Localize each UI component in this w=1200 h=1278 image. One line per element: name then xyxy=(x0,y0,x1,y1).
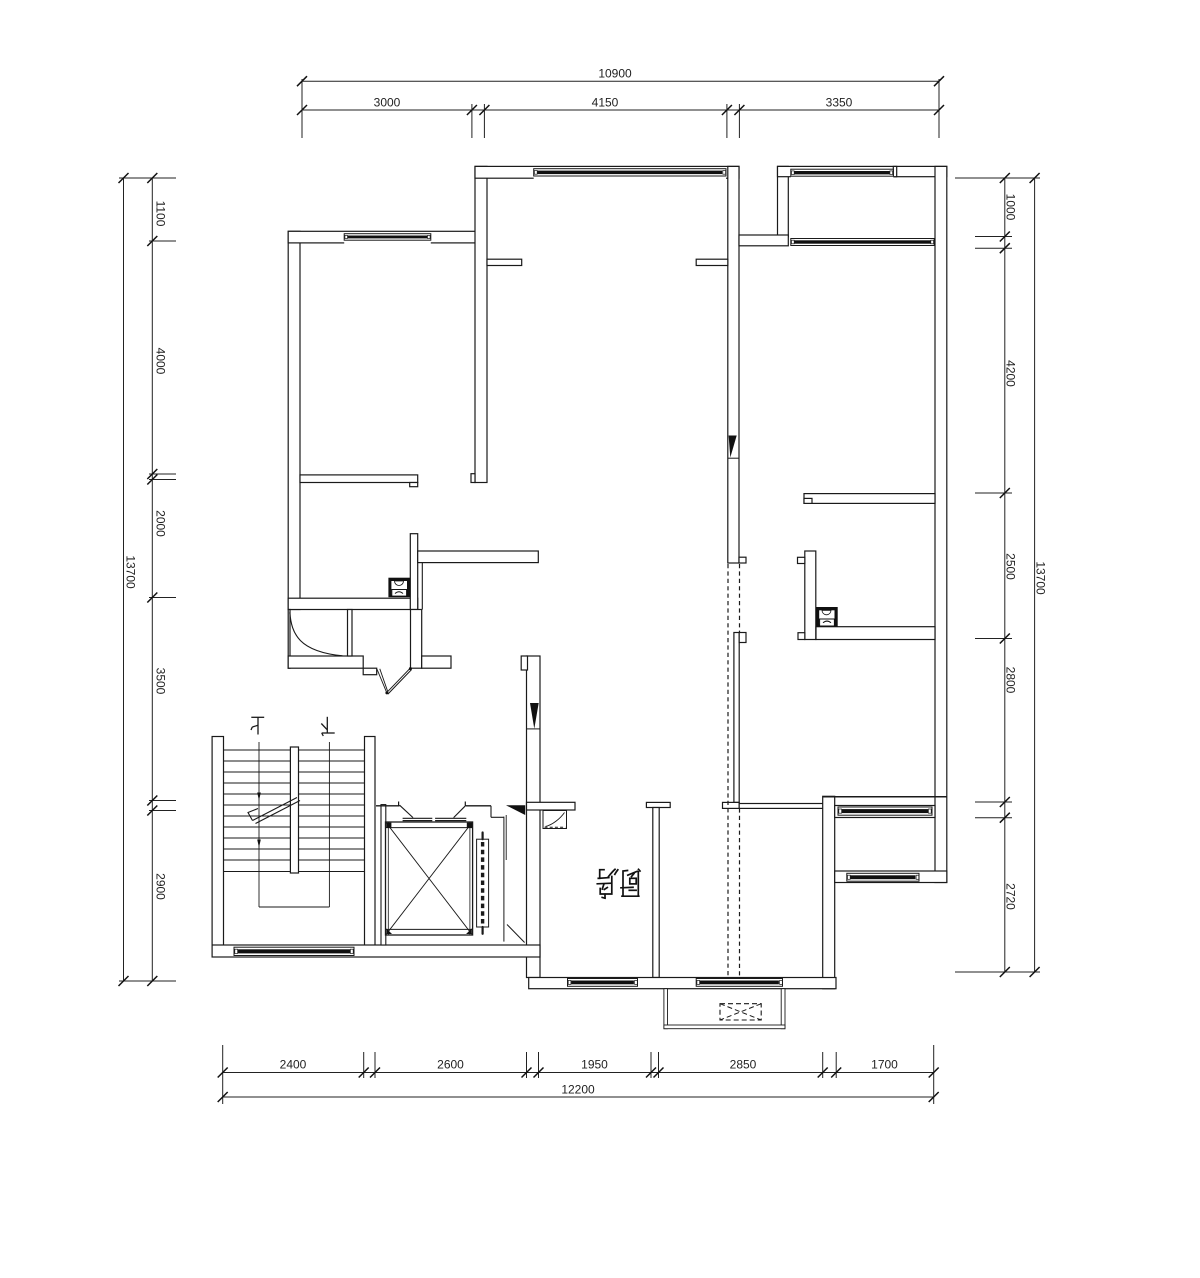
svg-text:12200: 12200 xyxy=(561,1083,595,1097)
svg-text:1700: 1700 xyxy=(871,1058,898,1072)
svg-text:1000: 1000 xyxy=(1004,194,1018,221)
svg-text:13700: 13700 xyxy=(124,555,138,589)
svg-text:1950: 1950 xyxy=(581,1058,608,1072)
svg-text:4000: 4000 xyxy=(154,348,168,375)
svg-text:13700: 13700 xyxy=(1034,561,1048,595)
svg-text:2720: 2720 xyxy=(1004,883,1018,910)
svg-text:1100: 1100 xyxy=(154,201,168,227)
svg-text:4200: 4200 xyxy=(1004,360,1018,387)
svg-text:2500: 2500 xyxy=(1004,553,1018,580)
svg-text:2900: 2900 xyxy=(154,873,168,900)
svg-text:2600: 2600 xyxy=(437,1058,464,1072)
svg-text:3000: 3000 xyxy=(374,96,401,110)
svg-text:10900: 10900 xyxy=(598,67,632,81)
svg-text:2000: 2000 xyxy=(154,510,168,537)
svg-text:4150: 4150 xyxy=(592,96,619,110)
svg-text:2800: 2800 xyxy=(1004,667,1018,694)
svg-text:2850: 2850 xyxy=(730,1058,757,1072)
svg-text:2400: 2400 xyxy=(280,1058,307,1072)
svg-text:3350: 3350 xyxy=(826,96,853,110)
svg-text:3500: 3500 xyxy=(154,668,168,695)
